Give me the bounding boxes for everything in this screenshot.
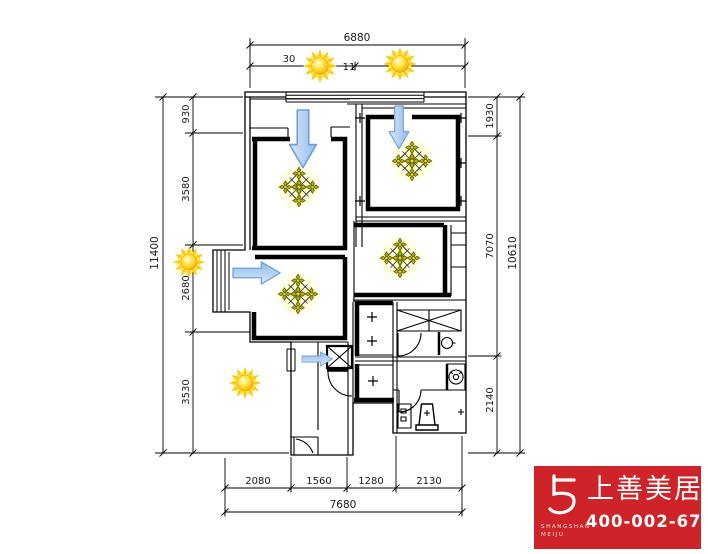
dim-left-seg4: 3530 (181, 379, 192, 404)
dim-bottom-seg4: 2130 (416, 476, 441, 487)
dim-bottom-seg2: 1560 (306, 476, 331, 487)
column-plus-mark (367, 312, 377, 322)
dim-right-total: 10610 (507, 236, 519, 269)
brand-name: 上善美居 (587, 475, 699, 505)
sun-icon (173, 246, 205, 278)
dim-left-seg3: 2680 (181, 275, 192, 300)
ceiling-medallion-icon (274, 162, 324, 212)
dim-bottom-total: 7680 (330, 499, 357, 511)
dim-top-seg1: 30 (283, 54, 296, 65)
dim-top-seg2: 11 (343, 62, 356, 73)
dim-left-seg2: 3580 (181, 176, 192, 201)
dimension-lines (155, 38, 525, 517)
dim-top-total: 6880 (344, 32, 371, 44)
dim-right-seg3: 2140 (485, 387, 496, 412)
airflow-arrows (233, 106, 409, 366)
ceiling-medallion-icon (375, 233, 425, 283)
floor-plan-page: 6880 30 11 11400 930 3580 2680 3530 1930… (0, 0, 708, 554)
brand-latin-line1: SHANGSHAN (541, 523, 591, 531)
column-plus-mark (367, 336, 377, 346)
ceiling-medallion-icon (387, 136, 437, 186)
column-plus-mark (368, 376, 378, 386)
dim-right-seg1: 1930 (485, 103, 496, 128)
brand-logo: 上善美居 SHANGSHAN MEIJU 400-002-6791 (534, 466, 701, 549)
brand-logo-mark-icon (542, 474, 584, 522)
brand-latin-name: SHANGSHAN MEIJU (541, 523, 591, 540)
brand-phone-number: 400-002-6791 (586, 512, 708, 531)
dim-right-seg2: 7070 (485, 233, 496, 258)
airflow-arrow-icon (290, 110, 317, 168)
dim-bottom-seg3: 1280 (358, 476, 383, 487)
sun-icon (229, 367, 261, 399)
brand-latin-line2: MEIJU (541, 531, 591, 539)
airflow-arrow-icon (233, 262, 280, 284)
ceiling-medallions (273, 136, 437, 319)
sun-icon (383, 47, 417, 81)
sun-icon (303, 49, 337, 83)
dim-bottom-seg1: 2080 (245, 476, 270, 487)
dim-left-seg1: 930 (181, 104, 192, 123)
ceiling-medallion-icon (273, 269, 323, 319)
dim-left-total: 11400 (149, 236, 161, 269)
